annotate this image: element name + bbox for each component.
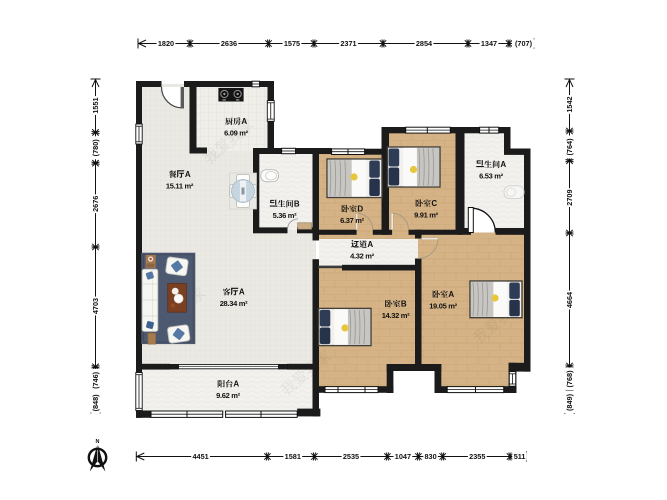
svg-text:2371: 2371 [340, 39, 356, 48]
svg-text:A: A [367, 240, 373, 249]
svg-text:2535: 2535 [343, 452, 359, 461]
svg-text:4664: 4664 [565, 291, 574, 308]
svg-text:A: A [239, 288, 245, 297]
svg-text:1581: 1581 [285, 452, 301, 461]
svg-text:B: B [294, 200, 300, 209]
svg-text:1542: 1542 [565, 96, 574, 112]
svg-text:6.09 m²: 6.09 m² [224, 129, 249, 138]
svg-text:(746): (746) [91, 371, 100, 389]
svg-text:2636: 2636 [221, 39, 237, 48]
svg-text:6.37 m²: 6.37 m² [340, 216, 365, 225]
svg-text:A: A [241, 117, 247, 126]
svg-text:4.32 m²: 4.32 m² [350, 252, 375, 261]
svg-text:C: C [431, 199, 437, 208]
svg-text:19.05 m²: 19.05 m² [429, 302, 457, 311]
svg-text:2854: 2854 [416, 39, 433, 48]
svg-text:5.36 m²: 5.36 m² [273, 211, 298, 220]
svg-text:(849): (849) [565, 393, 574, 411]
svg-text:1551: 1551 [91, 97, 100, 113]
svg-text:14.32 m²: 14.32 m² [382, 311, 410, 320]
svg-text:A: A [448, 290, 454, 299]
svg-text:A: A [500, 160, 506, 169]
svg-text:B: B [401, 300, 407, 309]
svg-text:(764): (764) [565, 138, 574, 156]
svg-text:2709: 2709 [565, 189, 574, 205]
svg-text:(848): (848) [91, 394, 100, 412]
svg-text:1575: 1575 [284, 39, 300, 48]
svg-text:A: A [185, 170, 191, 179]
svg-text:1347: 1347 [481, 39, 497, 48]
svg-text:4451: 4451 [192, 452, 208, 461]
svg-text:9.62 m²: 9.62 m² [216, 391, 241, 400]
svg-text:1820: 1820 [158, 39, 174, 48]
svg-text:D: D [357, 205, 363, 214]
svg-text:N: N [96, 439, 100, 445]
svg-text:6.53 m²: 6.53 m² [479, 172, 504, 181]
svg-text:2355: 2355 [469, 452, 485, 461]
svg-text:1047: 1047 [395, 452, 411, 461]
svg-text:(707): (707) [515, 39, 533, 48]
svg-text:28.34 m²: 28.34 m² [220, 299, 248, 308]
svg-text:2676: 2676 [91, 196, 100, 212]
svg-text:4703: 4703 [91, 298, 100, 314]
svg-text:830: 830 [425, 452, 437, 461]
svg-text:511: 511 [514, 452, 526, 461]
svg-text:A: A [233, 380, 239, 389]
svg-text:(780): (780) [91, 139, 100, 157]
svg-text:15.11 m²: 15.11 m² [166, 182, 194, 191]
svg-text:(768): (768) [565, 370, 574, 388]
svg-text:9.91 m²: 9.91 m² [414, 211, 439, 220]
